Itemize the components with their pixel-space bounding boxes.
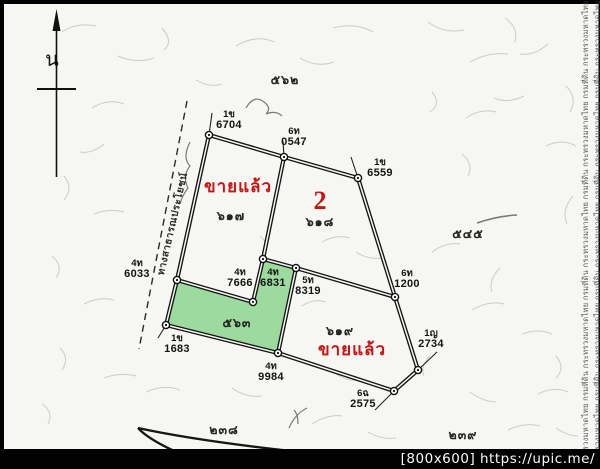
marker-label-6831: 4ท 6831 xyxy=(260,268,286,289)
compass-north-label: น xyxy=(45,43,59,75)
marker-label-8319: 5ท 8319 xyxy=(295,276,321,297)
marker-number: 0547 xyxy=(281,137,307,148)
marker-label-2734: 1ญ 2734 xyxy=(418,329,444,350)
marker-number: 6831 xyxy=(260,278,286,289)
plot-number-619: ๖๑๙ xyxy=(326,321,354,341)
marker-number: 2575 xyxy=(350,399,376,410)
adjacent-number-top: ๕๖๒ xyxy=(271,70,300,90)
marker-label-1683: 1ข 1683 xyxy=(164,334,190,355)
watermark-bar: [800x600] https://upic.me/ xyxy=(0,449,600,469)
plot-number-563: ๕๖๓ xyxy=(223,313,252,333)
marker-number: 7666 xyxy=(227,278,253,289)
marker-label-1200: 6ท 1200 xyxy=(394,269,420,290)
adjacent-number-bottom-right: ๒๓๙ xyxy=(449,425,478,445)
plot-number-617: ๖๑๗ xyxy=(217,206,245,226)
sold-label-plot-617: ขายแล้ว xyxy=(204,173,272,200)
side-watermark-column-1: กระทรวงมหาดไทย กรมที่ดิน กระทรวงมหาดไทย … xyxy=(580,0,592,469)
marker-number: 1683 xyxy=(164,344,190,355)
marker-label-6033: 4ท 6033 xyxy=(124,259,150,280)
marker-label-0547: 6ท 0547 xyxy=(281,127,307,148)
adjacent-number-bottom-left: ๒๓๘ xyxy=(209,420,238,440)
marker-label-6704: 1ข 6704 xyxy=(216,110,242,131)
adjacent-number-right: ๕๔๕ xyxy=(452,224,483,244)
marker-number: 6704 xyxy=(216,120,242,131)
plot-number-618: ๖๑๘ xyxy=(306,212,335,232)
marker-label-7666: 4ท 7666 xyxy=(227,268,253,289)
marker-number: 6559 xyxy=(367,168,393,179)
side-watermark-column-2: กระทรวงมหาดไทย กรมที่ดิน กระทรวงมหาดไทย … xyxy=(592,0,600,469)
marker-number: 2734 xyxy=(418,339,444,350)
marker-label-9984: 4ท 9984 xyxy=(258,362,284,383)
marker-number: 9984 xyxy=(258,372,284,383)
scan-edge-left xyxy=(0,0,4,453)
scanned-land-survey-map: น ทางสาธารณประโยชน์ 1ข 6704 6ท 0547 1ข 6… xyxy=(0,0,600,469)
marker-label-6559: 1ข 6559 xyxy=(367,158,393,179)
scan-edge-top xyxy=(0,0,600,4)
map-linework xyxy=(0,0,600,469)
marker-number: 1200 xyxy=(394,279,420,290)
paper-background xyxy=(0,0,600,469)
marker-number: 8319 xyxy=(295,286,321,297)
marker-label-2575: 6ฉ 2575 xyxy=(350,389,376,410)
plot-2-big-number: 2 xyxy=(314,188,327,214)
marker-number: 6033 xyxy=(124,269,150,280)
